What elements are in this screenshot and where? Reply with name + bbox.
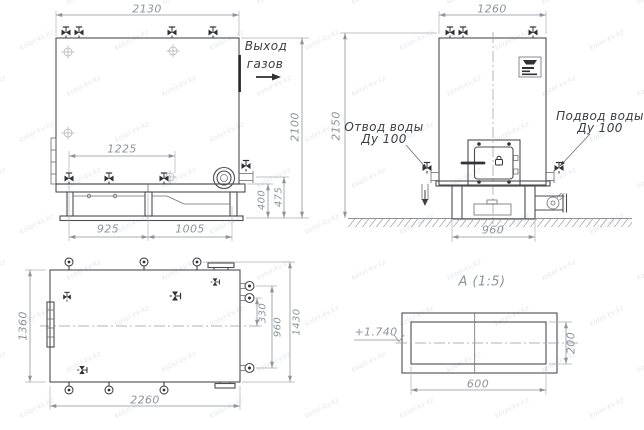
dim-front-overall-width: 2130 (132, 3, 162, 16)
front-right-stub-valve (239, 161, 253, 184)
weld-mark-icons (62, 45, 180, 184)
plan-chimney-flange (208, 263, 234, 270)
side-roof-valve-icons (446, 27, 538, 38)
elevation-label: +1.740 (354, 326, 397, 339)
dim-section-width: 600 (467, 378, 489, 391)
dim-front-base-height: 475 (274, 187, 285, 207)
label-gas-outlet-line1: Выход (245, 39, 287, 53)
drawing-sheet: kotel-kv.kzkotel-kv.kzkotel-kv.kzkotel-k… (0, 0, 644, 430)
plan-top-valve-icons (65, 258, 201, 271)
dim-front-base-left: 925 (97, 223, 119, 236)
boiler-drawing (0, 0, 644, 430)
front-shelf-valve-icons (65, 173, 169, 184)
front-flange (214, 168, 235, 189)
front-left-flange-strip (51, 138, 56, 184)
plan-view (25, 258, 295, 410)
furnace-door (462, 140, 520, 186)
dim-plan-stub-to-center: 330 (258, 303, 269, 323)
dim-front-overall-height: 2100 (289, 112, 302, 142)
label-leaders (406, 134, 590, 169)
dim-section-height: 200 (565, 332, 578, 354)
ash-hatch (474, 204, 511, 215)
dim-front-shelf-height: 400 (257, 190, 268, 210)
lock-icon (496, 156, 503, 165)
dim-side-base-width: 960 (482, 224, 504, 237)
front-boiler-body (56, 38, 239, 184)
dim-plan-height: 1360 (17, 311, 30, 341)
front-base-frame (60, 192, 243, 221)
dim-plan-stub-span: 960 (273, 317, 284, 337)
front-roof-valve-icons (62, 27, 218, 38)
gas-outlet-arrow-icon (256, 74, 281, 81)
dim-plan-overall: 1430 (292, 308, 303, 335)
section-title: А (1:5) (459, 275, 506, 290)
dim-front-inner-width: 1225 (107, 143, 137, 156)
dim-plan-width: 2260 (130, 394, 160, 407)
label-water-outlet-line2: Ду 100 (361, 132, 407, 146)
nameplate (519, 57, 541, 77)
label-gas-outlet-line2: газов (247, 57, 283, 71)
dim-side-overall-width: 1260 (477, 3, 507, 16)
dim-side-overall-height: 2150 (330, 111, 343, 141)
label-water-inlet-line2: Ду 100 (577, 121, 623, 135)
plan-bottom-flange (215, 382, 235, 388)
plan-bottom-valve-icons (65, 382, 168, 395)
burner-pipe (535, 193, 567, 213)
plan-right-stubs (240, 282, 254, 373)
section-dimensions (411, 322, 572, 395)
dim-front-base-right: 1005 (175, 223, 205, 236)
side-base (452, 186, 535, 219)
door-hinge-icon (514, 169, 519, 174)
door-hinge-icon (514, 156, 519, 161)
